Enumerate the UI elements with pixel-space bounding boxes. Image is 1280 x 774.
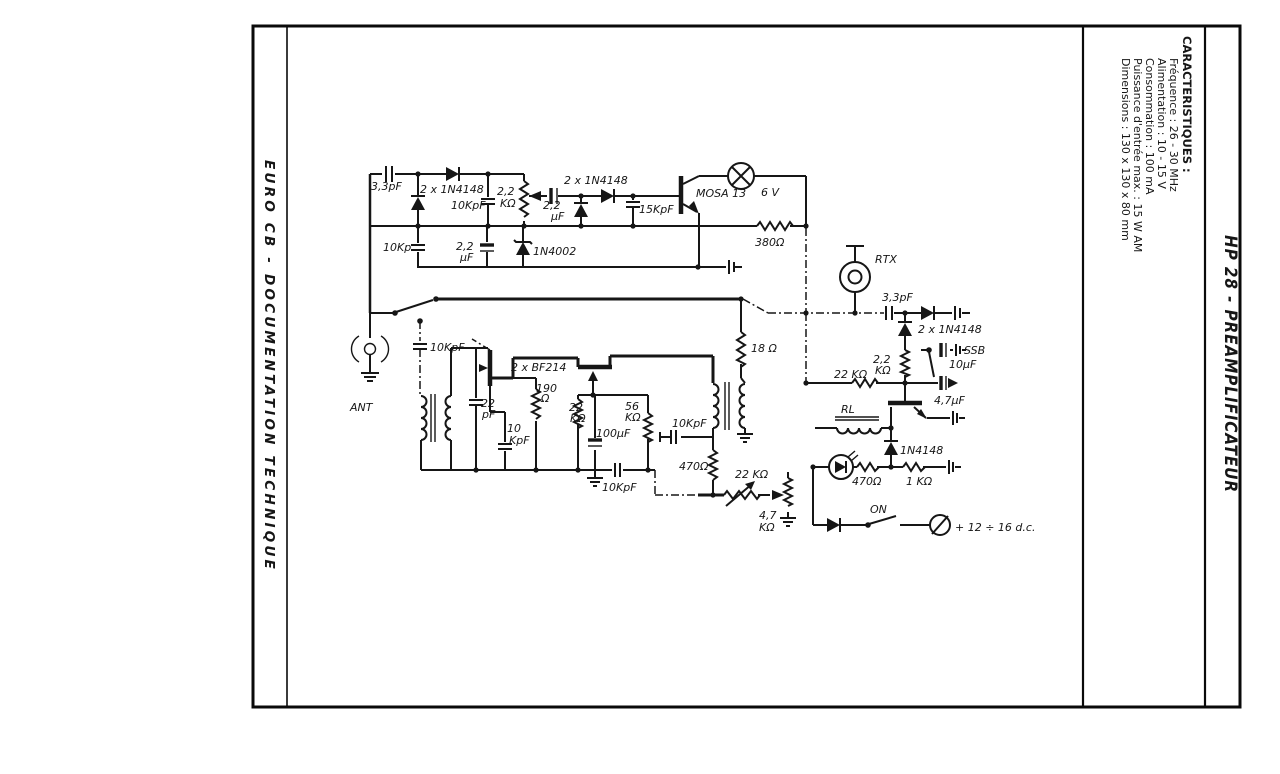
component-label: MOSA 13: [696, 187, 746, 200]
pot-wiper-arrow: [529, 191, 541, 201]
characteristics-block: CARACTERISTIQUES : Fréquence : 26 - 30 M…: [1119, 36, 1194, 252]
bf214-transistor-2: [578, 367, 612, 381]
component-label: 3,3pF: [882, 291, 913, 304]
transformer-input: [421, 394, 451, 442]
component-label: KΩ: [500, 197, 516, 210]
component-label: 6 V: [761, 186, 780, 199]
component-label: + 12 ÷ 16 d.c.: [955, 521, 1035, 534]
component-label: 2 x BF214: [511, 361, 566, 374]
component-label: 10KpF: [602, 481, 637, 494]
agc-arrow: [772, 490, 784, 500]
transformer-output: [713, 382, 745, 430]
component-label: 10Kp: [383, 241, 411, 254]
ssb-relay-contact: [926, 347, 932, 353]
out-arrow: [948, 378, 958, 388]
component-label: KΩ: [875, 364, 891, 377]
component-label: 22 KΩ: [735, 468, 769, 481]
page-frame: [253, 26, 1240, 707]
bf214-transistor-1: [479, 350, 490, 386]
component-label: 470Ω: [679, 460, 709, 473]
component-label: 1N4002: [533, 245, 576, 258]
component-label: 18 Ω: [751, 342, 777, 355]
component-label: 470Ω: [852, 475, 882, 488]
component-label: KpF: [509, 434, 530, 447]
lamp-6v-icon: [728, 163, 754, 189]
right-margin-title: HP 28 - PREAMPLIFICATEUR: [1220, 235, 1240, 493]
component-label: Ω: [540, 392, 550, 405]
characteristics-item: Dimensions : 130 x 130 x 80 mm: [1119, 58, 1132, 241]
component-label: pF: [481, 408, 496, 421]
rtx-connector: [840, 262, 870, 292]
component-label: KΩ: [625, 411, 641, 424]
driver-transistor: [888, 403, 927, 419]
component-label: 4,7µF: [934, 394, 965, 407]
relay-coil: [835, 417, 881, 434]
power-connector-icon: [930, 515, 950, 535]
component-label: 2 x 1N4148: [918, 323, 982, 336]
component-label: 2 x 1N4148: [564, 174, 628, 187]
component-label: KΩ: [759, 521, 775, 534]
component-label: ANT: [349, 401, 374, 414]
component-label: KΩ: [570, 412, 586, 425]
component-label: 10KpF: [430, 341, 465, 354]
component-label: µF: [459, 251, 474, 264]
component-label: 10KpF: [451, 199, 486, 212]
component-label: 1N4148: [900, 444, 943, 457]
component-label: 1 KΩ: [906, 475, 933, 488]
component-label: 10µF: [949, 358, 977, 371]
component-label: RTX: [875, 253, 897, 266]
characteristics-title: CARACTERISTIQUES :: [1180, 36, 1194, 173]
component-label: SSB: [964, 344, 985, 357]
component-label: 3,3pF: [371, 180, 402, 193]
junction-dots: [415, 171, 907, 497]
component-label: 10KpF: [672, 417, 707, 430]
schematic-canvas: EURO CB - DOCUMENTATION TECHNIQUE HP 28 …: [0, 0, 1280, 774]
left-margin-title: EURO CB - DOCUMENTATION TECHNIQUE: [261, 160, 276, 572]
component-label: ON: [870, 503, 887, 516]
scanned-document-page: EURO CB - DOCUMENTATION TECHNIQUE HP 28 …: [0, 0, 1280, 774]
component-label: 15KpF: [639, 203, 674, 216]
component-label: 380Ω: [755, 236, 785, 249]
component-label: µF: [550, 210, 565, 223]
margin-titles: EURO CB - DOCUMENTATION TECHNIQUE HP 28 …: [261, 160, 1240, 572]
resistor-symbols: [520, 181, 958, 506]
on-switch: [865, 522, 871, 528]
component-label: 22 KΩ: [834, 368, 868, 381]
component-label: 2 x 1N4148: [420, 183, 484, 196]
component-label: RL: [841, 403, 855, 416]
component-label: 100µF: [596, 427, 631, 440]
